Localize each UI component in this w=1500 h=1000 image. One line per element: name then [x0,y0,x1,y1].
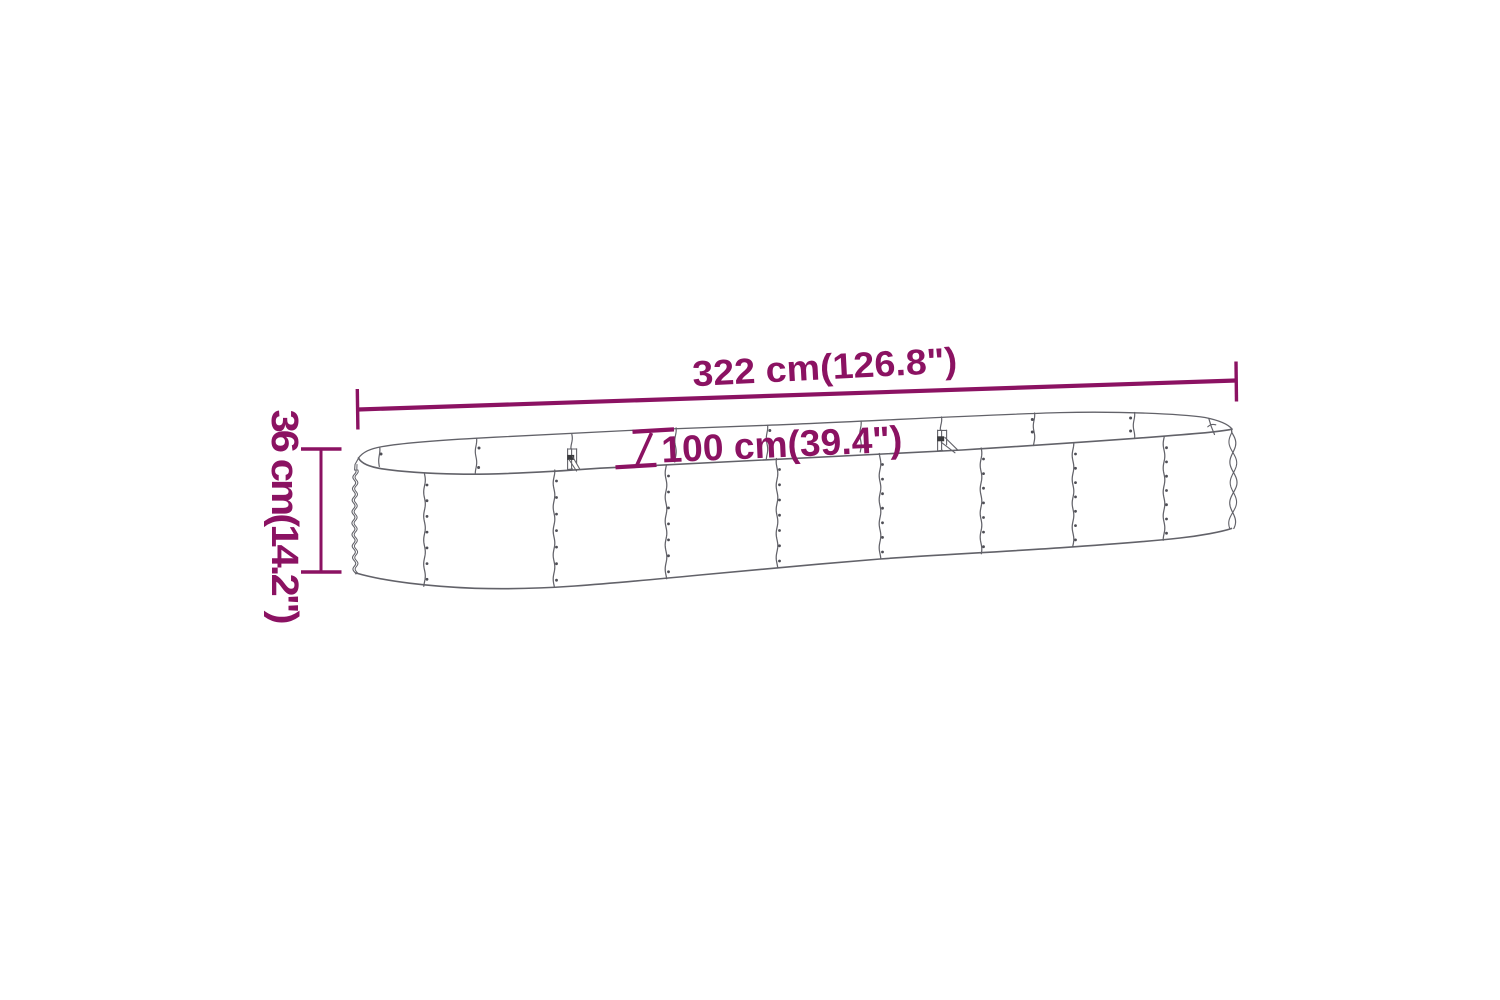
svg-text:322 cm(126.8"): 322 cm(126.8") [691,339,958,394]
svg-text:36 cm(14.2"): 36 cm(14.2") [263,410,305,625]
svg-text:100 cm(39.4"): 100 cm(39.4") [660,418,903,471]
